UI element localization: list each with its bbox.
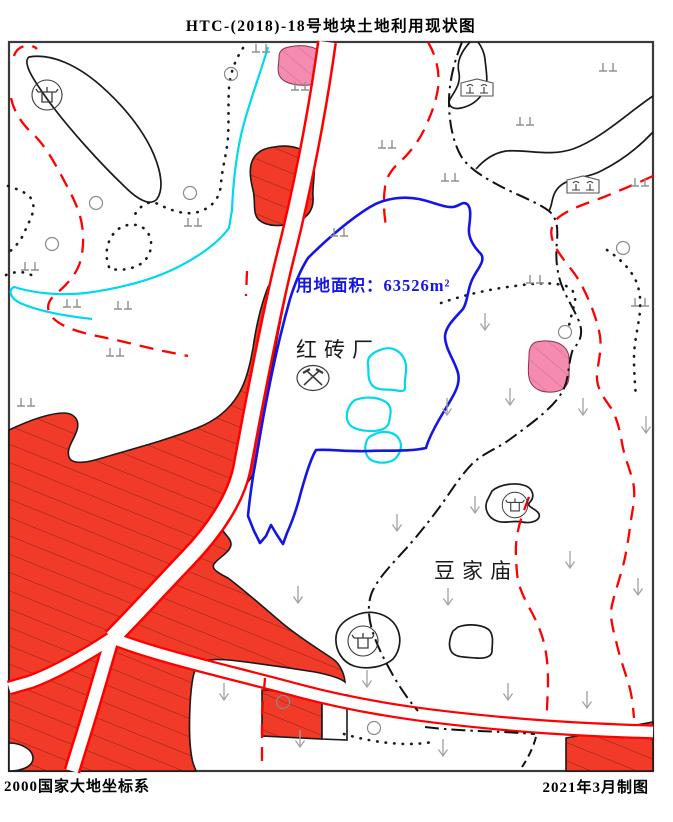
greenhouse-icon (567, 176, 599, 193)
mapping-date-note: 2021年3月制图 (542, 778, 649, 796)
greenhouse-icon (461, 79, 493, 96)
map-canvas: HTC-(2018)-18号地块土地利用现状图 (0, 0, 673, 822)
land-use-map-sheet: HTC-(2018)-18号地块土地利用现状图 (0, 0, 673, 822)
brick-factory-label: 红砖厂 (296, 338, 380, 362)
temple-village-label: 豆家庙 (434, 559, 518, 583)
map-title: HTC-(2018)-18号地块土地利用现状图 (186, 16, 476, 35)
parcel-area-label: 用地面积：63526m² (296, 275, 450, 295)
coordinate-system-note: 2000国家大地坐标系 (4, 777, 150, 795)
